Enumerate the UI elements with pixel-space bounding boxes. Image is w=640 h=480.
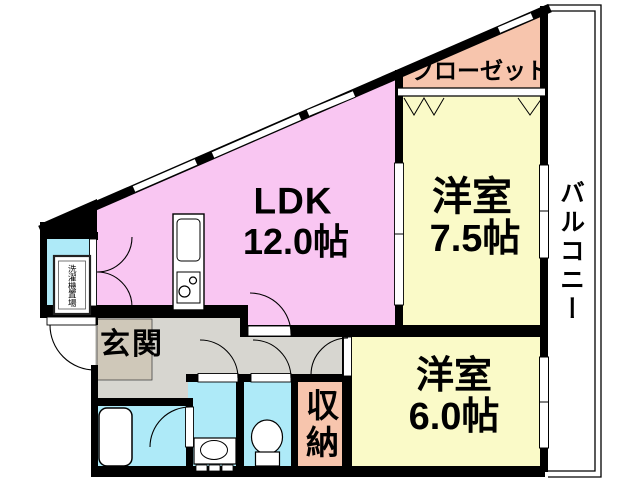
bathtub bbox=[99, 408, 132, 466]
kitchen-sink bbox=[177, 219, 200, 261]
left-outer-wall bbox=[40, 222, 47, 318]
stove-burner-small bbox=[190, 277, 197, 284]
washbasin bbox=[194, 438, 236, 471]
ldk-label: LDK bbox=[253, 183, 332, 220]
kitchen-counter bbox=[173, 214, 204, 310]
closet-label: クローゼット bbox=[411, 60, 549, 83]
stove-burner-large bbox=[179, 286, 190, 297]
corner-wall-fill bbox=[40, 199, 97, 239]
bath-wash-wall-bottom bbox=[186, 447, 193, 476]
toilet-door-leaf bbox=[251, 374, 291, 383]
ldk-door-opening bbox=[248, 326, 291, 336]
western-room-upper-size-label: 7.5帖 bbox=[430, 220, 521, 258]
laundry-space-label: 洗濯機置場 bbox=[68, 265, 77, 308]
toilet bbox=[252, 420, 283, 466]
ldk-floor bbox=[91, 74, 398, 332]
lower-room-door-leaf bbox=[344, 337, 352, 376]
western-room-lower-label: 洋室 bbox=[416, 357, 492, 395]
bath-wash-wall-top bbox=[186, 398, 193, 407]
washroom-door-leaf bbox=[198, 374, 238, 383]
entrance-door-arc bbox=[50, 325, 95, 370]
storage-label: 収納 bbox=[304, 388, 337, 462]
western-room-lower-size-label: 6.0帖 bbox=[409, 398, 500, 436]
balcony-label: バルコニー bbox=[558, 180, 583, 325]
closet-track bbox=[398, 89, 545, 96]
floor-plan: LDK 12.0帖 洋室 7.5帖 洋室 6.0帖 クローゼット 玄関 収納 バ… bbox=[0, 0, 640, 480]
entrance-door-leaf bbox=[47, 317, 96, 325]
right-outer-wall-mid bbox=[540, 258, 548, 357]
western-room-upper-label: 洋室 bbox=[432, 177, 512, 217]
toilet-storage-wall bbox=[291, 378, 298, 476]
ldk-size-label: 12.0帖 bbox=[243, 224, 349, 260]
bottom-outer-wall bbox=[91, 466, 545, 477]
wash-toilet-wall bbox=[236, 378, 244, 476]
right-outer-wall-top bbox=[540, 6, 548, 165]
bathroom-door-leaf bbox=[186, 407, 194, 447]
entrance-label: 玄関 bbox=[100, 330, 164, 360]
bathroom-north-wall bbox=[91, 398, 193, 406]
left-lower-outer-wall bbox=[91, 365, 98, 476]
